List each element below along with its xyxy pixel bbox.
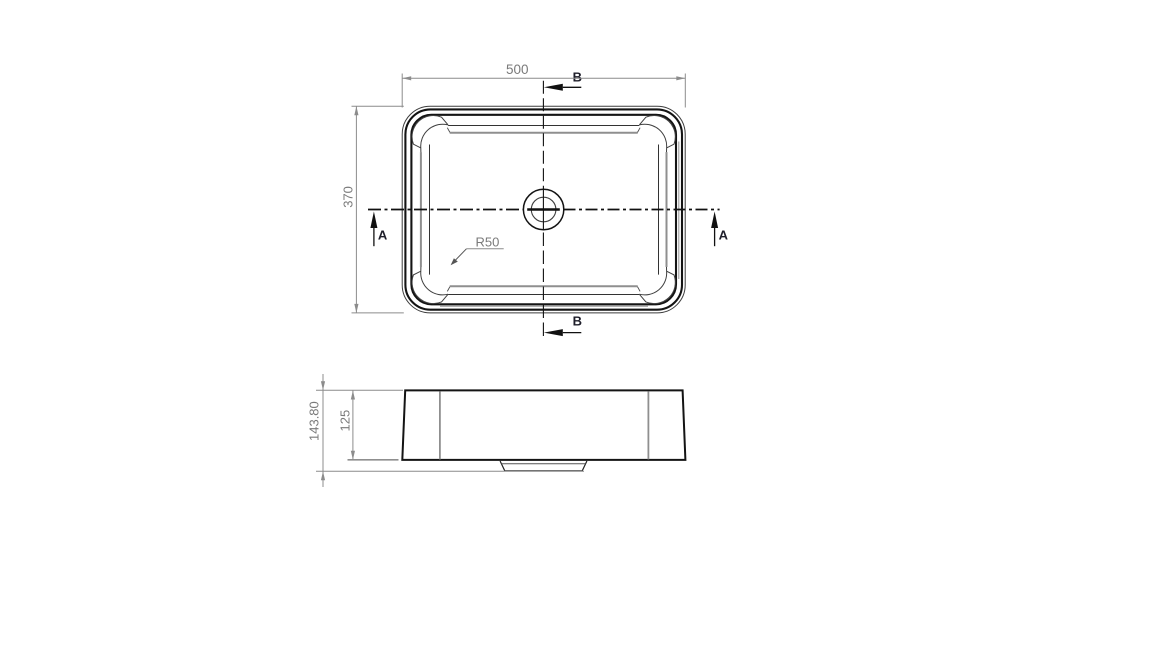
svg-text:B: B <box>573 70 582 85</box>
svg-text:A: A <box>378 227 388 242</box>
svg-text:143.80: 143.80 <box>307 401 322 441</box>
svg-text:125: 125 <box>338 410 353 432</box>
svg-text:A: A <box>719 227 729 242</box>
svg-text:B: B <box>573 313 582 328</box>
svg-text:500: 500 <box>506 62 529 77</box>
svg-text:R50: R50 <box>476 235 500 250</box>
svg-text:370: 370 <box>341 186 356 208</box>
